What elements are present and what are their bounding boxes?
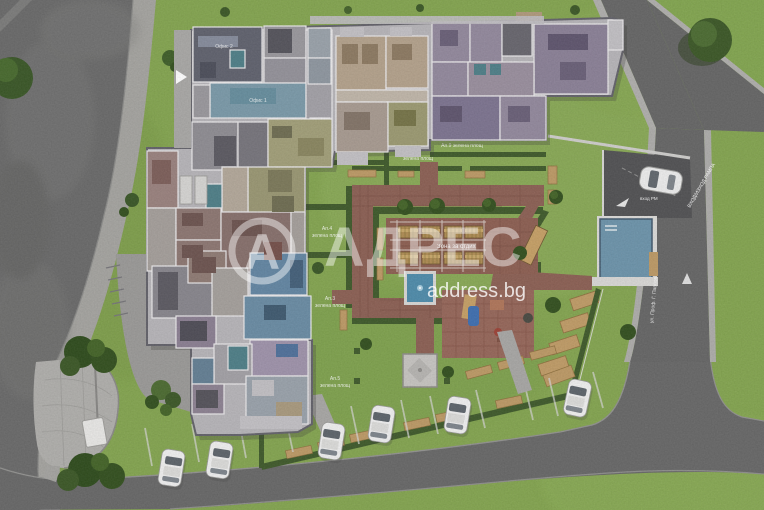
svg-text:address.bg: address.bg xyxy=(427,280,526,302)
svg-text:А: А xyxy=(244,224,280,280)
svg-text:АДРЕС: АДРЕС xyxy=(324,215,522,278)
